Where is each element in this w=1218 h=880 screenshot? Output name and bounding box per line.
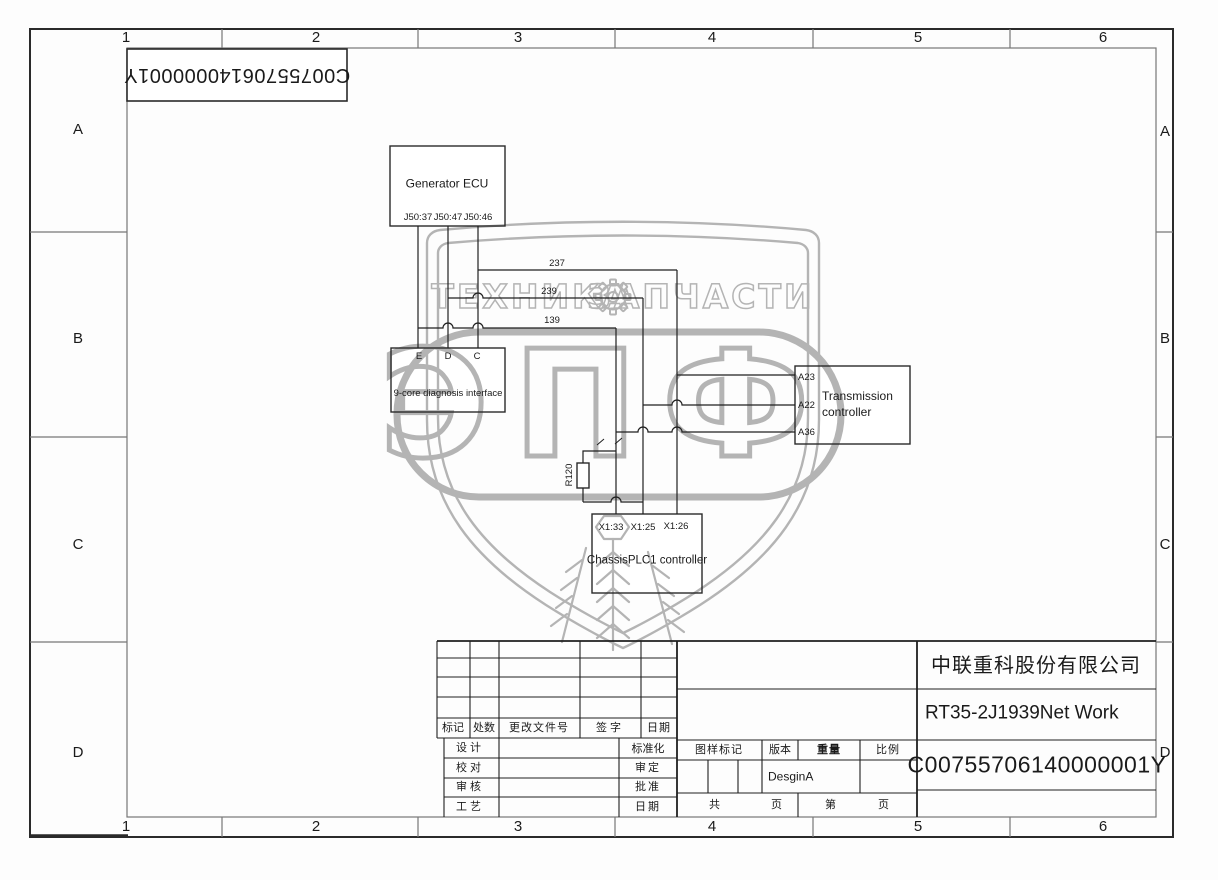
zone-col-3-top: 3 [514,30,522,47]
wire-r120-top [583,451,616,463]
tb-design: 设计 [456,742,484,754]
tb-pages-total-unit: 页 [771,799,783,811]
zone-row-a-right: A [1160,124,1170,141]
plc-title: ChassisPLC1 controller [587,555,707,568]
drawing-sheet: ТЕХНИКА ЗАПЧАСТИ ЭПФ [0,0,1218,880]
transmission-title: Transmission controller [822,388,902,420]
zone-col-6-bottom: 6 [1099,819,1107,836]
transmission-pin-a36: A36 [798,428,815,438]
tb-version-label: 版本 [769,744,791,756]
tb-date: 日期 [635,801,661,813]
plc-pin-x1-26: X1:26 [664,522,689,532]
zone-col-5-bottom: 5 [914,819,922,836]
tb-pages-no-label: 第 [825,799,837,811]
diagnosis-pin-e: E [416,352,422,362]
zone-row-a-left: A [73,122,83,139]
diagnosis-title: 9-core diagnosis interface [394,389,503,399]
tb-weight-label: 重量 [817,744,841,756]
zone-row-b-left: B [73,331,83,348]
zone-row-c-left: C [73,537,84,554]
transmission-pin-a22: A22 [798,401,815,411]
generator-ecu-title: Generator ECU [406,177,489,190]
plc-pin-x1-33: X1:33 [599,523,624,533]
wire-label-139: 139 [544,316,560,326]
tb-company-name: 中联重科股份有限公司 [931,655,1141,677]
wire-label-239: 239 [541,287,557,297]
tb-drawing-number: C00755706140000001Y [908,752,1167,777]
tb-approve: 批准 [635,781,661,793]
zone-col-2-bottom: 2 [312,819,320,836]
tb-review: 审核 [456,781,484,793]
linework-layer [0,0,1218,880]
transmission-pin-a23: A23 [798,373,815,383]
corner-ref-number: C00755706140000001Y [124,64,350,86]
tb-rev-docno: 更改文件号 [509,722,569,734]
zone-col-1-bottom: 1 [122,819,130,836]
generator-ecu-pin-j50-47: J50:47 [434,213,463,223]
zone-row-c-right: C [1160,537,1171,554]
tb-stamp-mark: 图样标记 [695,744,743,756]
generator-ecu-pin-j50-46: J50:46 [464,213,493,223]
tb-pages-no-unit: 页 [878,799,890,811]
wiring [418,226,795,514]
generator-ecu-pin-j50-37: J50:37 [404,213,433,223]
plc-pin-x1-25: X1:25 [631,523,656,533]
tb-pages-total-label: 共 [709,799,721,811]
wire-label-237: 237 [549,259,565,269]
tb-version-value: DesginA [768,770,813,783]
tb-rev-date: 日期 [647,722,671,734]
tb-standardize: 标准化 [632,743,665,755]
tb-rev-mark: 标记 [442,722,464,734]
zone-row-d-left: D [73,745,84,762]
wire-r120-bottom [583,488,643,502]
diagnosis-pin-d: D [445,352,452,362]
wire-a22 [643,400,795,405]
zone-col-1-top: 1 [122,30,130,47]
tb-scale-label: 比例 [876,744,900,756]
zone-col-5-top: 5 [914,30,922,47]
tb-drawing-title: RT35-2J1939Net Work [925,704,1119,725]
zone-col-2-top: 2 [312,30,320,47]
tb-approve-check: 审定 [635,762,661,774]
tb-process: 工艺 [456,801,484,813]
tb-rev-sign: 签字 [596,722,624,734]
tb-rev-count: 处数 [473,722,495,734]
diagnosis-pin-c: C [474,352,481,362]
zone-col-4-bottom: 4 [708,819,716,836]
zone-col-3-bottom: 3 [514,819,522,836]
resistor-r120 [577,463,589,488]
zone-col-4-top: 4 [708,30,716,47]
zone-row-b-right: B [1160,331,1170,348]
zone-col-6-top: 6 [1099,30,1107,47]
tb-check: 校对 [456,762,484,774]
twisted-pair-marks [597,438,622,445]
resistor-label-r120: R120 [565,464,575,487]
